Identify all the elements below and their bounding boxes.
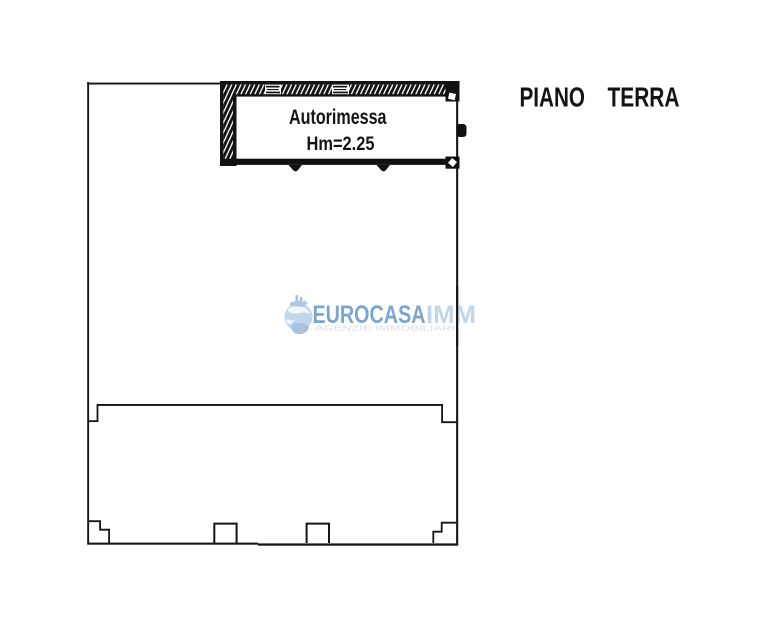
svg-text:Hm=2.25: Hm=2.25	[307, 133, 375, 155]
svg-text:PIANO: PIANO	[520, 81, 586, 112]
svg-text:Autorimessa: Autorimessa	[289, 106, 387, 129]
svg-text:AGENZIE IMMOBILIARI: AGENZIE IMMOBILIARI	[315, 324, 455, 333]
svg-text:TERRA: TERRA	[608, 81, 680, 112]
